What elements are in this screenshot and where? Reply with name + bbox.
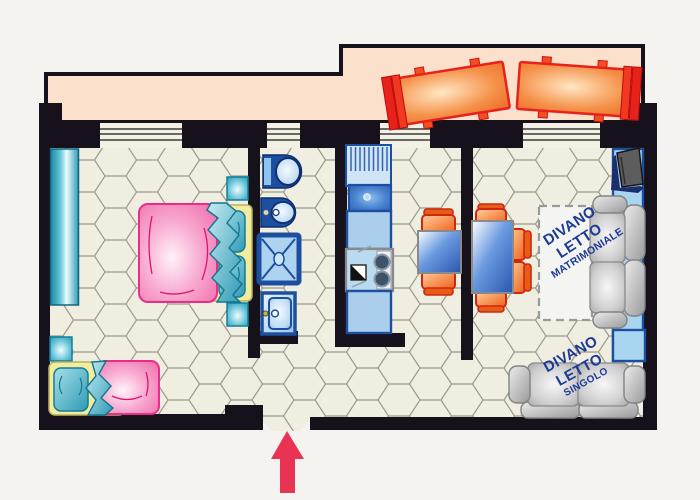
window-bedroom [100, 123, 182, 148]
wall-kitchen-bottom [335, 333, 405, 347]
floor-plan: DIVANO LETTO MATRIMONIALE DIVANO LETTO S… [0, 0, 700, 500]
wall-top-d [430, 120, 523, 148]
sofa-armrest [624, 366, 645, 403]
wall-entry-jamb [225, 405, 263, 416]
kitchen-counter [347, 211, 391, 249]
washing-machine [262, 293, 295, 334]
chair [422, 271, 455, 295]
sofa-back [624, 260, 645, 316]
kitchen-table [418, 231, 461, 273]
nightstand [50, 337, 72, 361]
bidet [261, 198, 296, 227]
shower [259, 235, 299, 283]
bathroom [259, 155, 302, 334]
kitchen-sink [349, 185, 391, 211]
dish-drainer [346, 145, 391, 186]
nightstand [227, 303, 248, 326]
bed-blanket [139, 204, 217, 302]
double-bed [139, 203, 252, 302]
wardrobe [51, 149, 79, 305]
wall-top-c [300, 120, 380, 148]
sofa-seat [590, 262, 625, 313]
wall-bottom-left [39, 414, 263, 430]
wall-top-a [39, 120, 100, 148]
bed-pillow [54, 368, 88, 411]
toilet [263, 155, 302, 188]
kitchen-table-set [418, 209, 461, 295]
wall-bottom-right [310, 417, 657, 430]
chair [422, 209, 455, 233]
single-bed [49, 361, 159, 415]
nightstand [227, 177, 248, 200]
kitchen-counter [347, 291, 391, 333]
chair [476, 291, 506, 312]
cooktop [346, 246, 393, 291]
wall-top-b [182, 120, 267, 148]
window-living [523, 123, 600, 148]
window-bathroom [267, 123, 300, 148]
